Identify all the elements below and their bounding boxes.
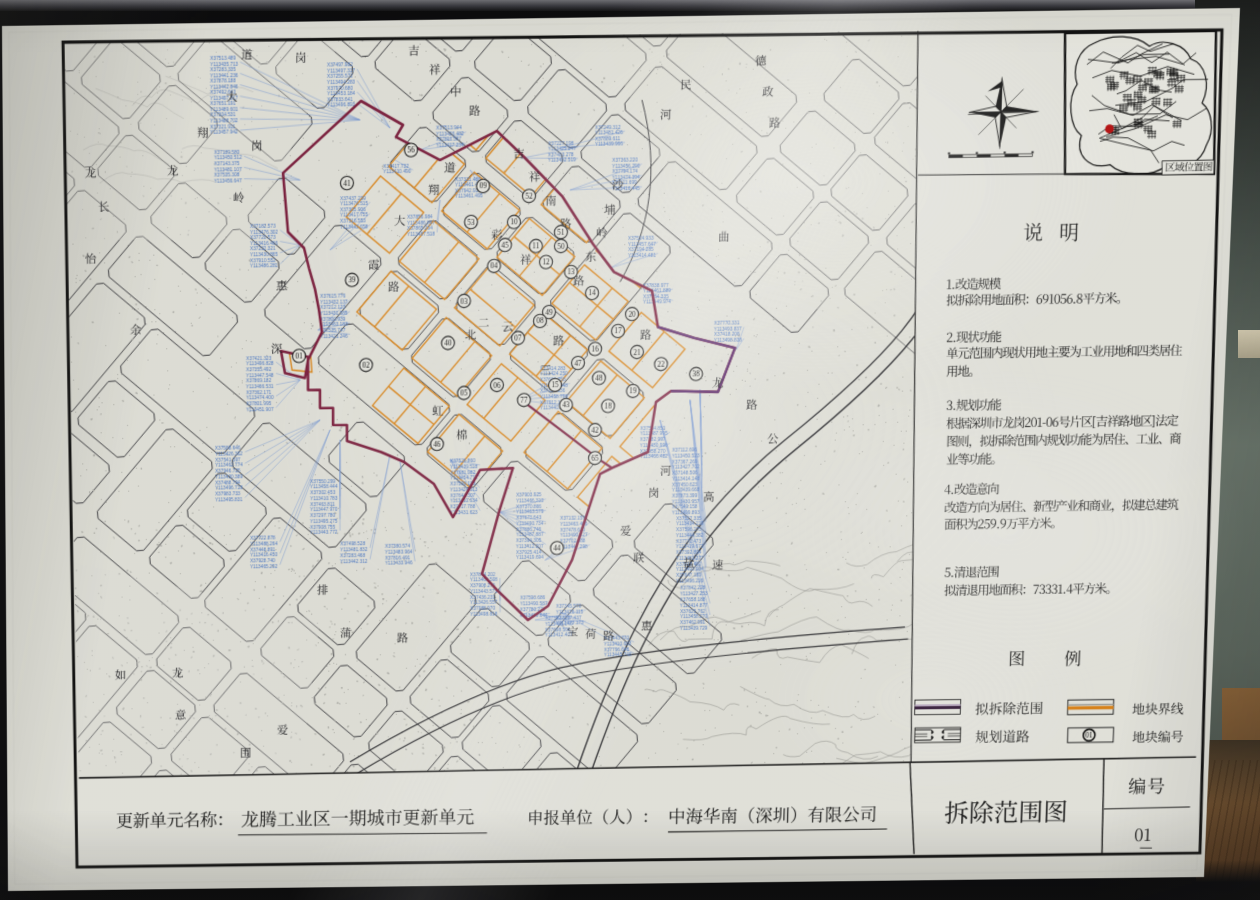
svg-text:06: 06 — [493, 381, 501, 390]
svg-text:X37818.462: X37818.462 — [676, 561, 702, 567]
svg-text:X37615.776: X37615.776 — [320, 294, 346, 300]
svg-text:Y113496.893: Y113496.893 — [327, 102, 355, 108]
svg-text:X37189.580: X37189.580 — [214, 150, 240, 156]
svg-text:X37227.198: X37227.198 — [548, 141, 574, 147]
svg-text:Y113456.290: Y113456.290 — [612, 163, 640, 169]
svg-text:Y113496.216: Y113496.216 — [676, 578, 704, 584]
svg-text:Y113495.831: Y113495.831 — [215, 497, 243, 503]
svg-text:Y113457.942: Y113457.942 — [210, 130, 238, 136]
svg-text:03: 03 — [460, 297, 468, 306]
svg-text:Y113417.234: Y113417.234 — [436, 143, 464, 149]
svg-text:X37698.506: X37698.506 — [545, 627, 571, 633]
svg-text:Y113489.601: Y113489.601 — [210, 107, 238, 113]
svg-text:10: 10 — [510, 218, 518, 227]
svg-text:Y113416.466: Y113416.466 — [250, 241, 278, 247]
svg-text:17: 17 — [614, 327, 622, 336]
svg-text:X37970.680: X37970.680 — [327, 85, 353, 91]
svg-text:Y113432.519: Y113432.519 — [548, 158, 576, 164]
svg-text:Y113447.298: Y113447.298 — [560, 544, 588, 550]
svg-text:X37925.414: X37925.414 — [516, 550, 542, 556]
svg-text:Y113442.658: Y113442.658 — [340, 224, 368, 230]
svg-text:X37889.611: X37889.611 — [595, 136, 621, 142]
svg-text:X37702.688: X37702.688 — [560, 539, 586, 545]
svg-text:X37946.725: X37946.725 — [215, 469, 241, 475]
svg-text:16: 16 — [591, 345, 599, 354]
svg-text:X37448.891: X37448.891 — [250, 547, 276, 553]
svg-text:X37362.171: X37362.171 — [246, 390, 272, 396]
svg-text:07: 07 — [514, 334, 522, 343]
svg-text:15: 15 — [551, 381, 559, 390]
svg-text:Y113442.312: Y113442.312 — [340, 559, 368, 565]
svg-text:X37720.573: X37720.573 — [250, 235, 276, 241]
svg-text:45: 45 — [501, 241, 509, 250]
svg-text:Y113414.877: Y113414.877 — [680, 603, 708, 609]
svg-text:12: 12 — [542, 258, 550, 267]
svg-text:X37535.308: X37535.308 — [214, 172, 240, 178]
svg-text:Y113458.270: Y113458.270 — [680, 614, 708, 620]
svg-text:Y113410.783: Y113410.783 — [310, 496, 338, 502]
svg-text:46: 46 — [433, 440, 441, 449]
svg-text:X37873.399: X37873.399 — [672, 493, 698, 499]
svg-text:X37132.159: X37132.159 — [560, 516, 586, 522]
svg-text:Y113493.837: Y113493.837 — [714, 326, 742, 332]
svg-text:47: 47 — [574, 359, 582, 368]
svg-text:X37497.982: X37497.982 — [327, 63, 353, 69]
svg-text:X37143.375: X37143.375 — [214, 161, 240, 167]
svg-text:Y113424.613: Y113424.613 — [450, 487, 478, 493]
svg-text:44: 44 — [553, 544, 561, 553]
svg-text:X37856.984: X37856.984 — [407, 215, 433, 221]
svg-text:08: 08 — [536, 317, 544, 326]
svg-text:Y113463.183: Y113463.183 — [320, 322, 348, 328]
svg-text:48: 48 — [595, 374, 603, 383]
svg-text:X37590.686: X37590.686 — [520, 596, 546, 602]
svg-text:X37321.486: X37321.486 — [455, 177, 481, 183]
svg-text:Y113462.774: Y113462.774 — [215, 463, 243, 469]
svg-text:Y113426.462: Y113426.462 — [436, 131, 464, 137]
svg-text:X37651.191: X37651.191 — [210, 101, 236, 107]
svg-text:40: 40 — [444, 339, 452, 348]
svg-text:65: 65 — [591, 454, 599, 463]
svg-text:X37526.860: X37526.860 — [450, 459, 476, 465]
svg-text:X37436.231: X37436.231 — [470, 595, 496, 601]
svg-text:Y113419.673: Y113419.673 — [676, 544, 704, 550]
svg-text:Y113466.310: Y113466.310 — [516, 498, 544, 504]
svg-text:X37869.182: X37869.182 — [246, 379, 272, 385]
svg-text:X37513.944: X37513.944 — [436, 126, 462, 132]
svg-text:X37283.468: X37283.468 — [340, 553, 366, 559]
svg-text:09: 09 — [479, 182, 487, 191]
svg-text:X37513.489: X37513.489 — [210, 56, 236, 62]
svg-text:Y113435.713: Y113435.713 — [210, 61, 238, 67]
svg-text:43: 43 — [562, 401, 570, 410]
svg-text:Y113439.518: Y113439.518 — [450, 464, 478, 470]
svg-text:05: 05 — [460, 389, 468, 398]
svg-text:Y113425.247: Y113425.247 — [548, 146, 576, 152]
svg-text:X37304.531: X37304.531 — [210, 113, 236, 119]
svg-text:Y113496.718: Y113496.718 — [215, 485, 243, 491]
svg-text:Y113426.362: Y113426.362 — [215, 451, 243, 457]
svg-text:22: 22 — [657, 360, 665, 369]
svg-text:Y113430.957: Y113430.957 — [672, 499, 700, 505]
svg-text:Y113498.818: Y113498.818 — [470, 612, 498, 618]
svg-text:X37928.740: X37928.740 — [250, 559, 276, 565]
svg-text:Y113443.571: Y113443.571 — [470, 589, 498, 595]
svg-text:Y113493.934: Y113493.934 — [676, 567, 704, 573]
svg-text:Y113421.246: Y113421.246 — [320, 334, 348, 340]
svg-text:Y113410.490: Y113410.490 — [383, 169, 411, 175]
svg-text:X37527.335: X37527.335 — [676, 516, 702, 522]
svg-text:X37549.158: X37549.158 — [672, 505, 698, 511]
svg-text:Y113432.137: Y113432.137 — [320, 299, 348, 305]
svg-text:X37865.254: X37865.254 — [407, 226, 433, 232]
svg-text:X37355.492: X37355.492 — [246, 367, 272, 373]
svg-text:Y113497.817: Y113497.817 — [210, 96, 238, 102]
svg-text:Y113490.587: Y113490.587 — [520, 601, 548, 607]
svg-text:X37182.573: X37182.573 — [250, 224, 276, 230]
svg-text:X37886.746: X37886.746 — [516, 527, 542, 533]
svg-text:X37658.188: X37658.188 — [680, 597, 706, 603]
svg-text:Y113460.508: Y113460.508 — [470, 577, 498, 583]
svg-text:X37981.982: X37981.982 — [450, 470, 476, 476]
svg-text:Y113414.148: Y113414.148 — [672, 476, 700, 482]
svg-text:X37550.299: X37550.299 — [310, 479, 336, 485]
svg-text:77: 77 — [520, 396, 528, 405]
svg-text:X37794.174: X37794.174 — [612, 169, 638, 175]
svg-text:X37908.755: X37908.755 — [310, 524, 336, 530]
svg-text:Y113419.694: Y113419.694 — [516, 555, 544, 561]
svg-text:X37414.283: X37414.283 — [540, 366, 566, 372]
svg-text:11: 11 — [532, 242, 539, 251]
svg-text:Y113430.389: Y113430.389 — [215, 474, 243, 480]
svg-text:X37811.587: X37811.587 — [436, 137, 462, 143]
svg-text:X37450.623: X37450.623 — [672, 482, 698, 488]
svg-text:Y113444.382: Y113444.382 — [676, 533, 704, 539]
svg-text:01: 01 — [1085, 731, 1093, 740]
svg-text:Y113442.846: Y113442.846 — [210, 84, 238, 90]
svg-text:X37394.305: X37394.305 — [516, 538, 542, 544]
svg-text:04: 04 — [490, 262, 498, 271]
svg-text:X37380.574: X37380.574 — [385, 544, 411, 550]
svg-text:X37596.275: X37596.275 — [676, 527, 702, 533]
svg-text:Y113481.832: Y113481.832 — [340, 547, 368, 553]
svg-text:X37910.552: X37910.552 — [250, 258, 276, 264]
svg-text:14: 14 — [588, 289, 596, 298]
svg-text:X37554.335: X37554.335 — [643, 294, 669, 300]
svg-text:Y113441.236: Y113441.236 — [210, 73, 238, 79]
svg-text:Y113463.579: Y113463.579 — [516, 510, 544, 516]
svg-text:X37842.228: X37842.228 — [680, 586, 706, 592]
svg-text:Y113445.748: Y113445.748 — [604, 653, 632, 659]
svg-text:Y113410.683: Y113410.683 — [604, 641, 632, 647]
svg-text:53: 53 — [467, 218, 475, 227]
svg-text:Y113450.512: Y113450.512 — [214, 155, 242, 161]
svg-text:Y113476.115: Y113476.115 — [556, 609, 583, 615]
svg-text:X37647.183: X37647.183 — [676, 573, 702, 579]
svg-text:X37488.794: X37488.794 — [215, 480, 241, 486]
svg-text:X37988.970: X37988.970 — [470, 606, 496, 612]
svg-text:Y113490.827: Y113490.827 — [560, 533, 588, 539]
svg-text:X37367.269: X37367.269 — [672, 459, 698, 465]
svg-text:X37316.553: X37316.553 — [340, 218, 366, 224]
svg-text:Y113416.450: Y113416.450 — [250, 553, 278, 559]
svg-text:Y113496.828: Y113496.828 — [246, 361, 274, 367]
svg-text:Y113481.426: Y113481.426 — [595, 130, 623, 136]
svg-text:21: 21 — [633, 348, 641, 357]
svg-text:X37625.762: X37625.762 — [680, 609, 706, 615]
svg-text:X37722.878: X37722.878 — [250, 536, 276, 542]
svg-text:X37403.278: X37403.278 — [548, 152, 574, 158]
svg-text:X37283.335: X37283.335 — [210, 67, 236, 73]
svg-text:X37111.699: X37111.699 — [612, 180, 637, 186]
svg-text:Y113424.250: Y113424.250 — [540, 371, 568, 377]
svg-text:X37182.997: X37182.997 — [640, 437, 666, 443]
svg-text:Y113474.400: Y113474.400 — [246, 395, 274, 401]
svg-text:X37796.645: X37796.645 — [604, 647, 630, 653]
svg-text:X37535.747: X37535.747 — [320, 328, 346, 334]
svg-text:Y113412.207: Y113412.207 — [516, 544, 544, 550]
svg-text:Y113466.531: Y113466.531 — [246, 384, 274, 390]
svg-text:38: 38 — [692, 370, 700, 379]
svg-text:X37417.788: X37417.788 — [450, 504, 476, 510]
svg-text:Y113486.897: Y113486.897 — [407, 220, 435, 226]
svg-text:Y113487.518: Y113487.518 — [407, 232, 435, 238]
svg-text:Y113417.755: Y113417.755 — [340, 213, 368, 219]
svg-text:Y113487.887: Y113487.887 — [516, 532, 544, 538]
svg-text:Y113495.275: Y113495.275 — [310, 518, 338, 524]
svg-text:Y113447.548: Y113447.548 — [246, 373, 274, 379]
svg-text:Y113439.729: Y113439.729 — [680, 626, 708, 632]
svg-text:Y113487.995: Y113487.995 — [640, 431, 668, 437]
svg-text:19: 19 — [629, 387, 637, 396]
svg-text:X37463.811: X37463.811 — [310, 502, 335, 508]
svg-text:Y113449.974: Y113449.974 — [643, 300, 671, 306]
svg-text:X37588.646: X37588.646 — [215, 446, 241, 452]
svg-text:51: 51 — [557, 228, 565, 237]
svg-text:X37232.321: X37232.321 — [250, 246, 276, 252]
svg-text:X37305.906: X37305.906 — [340, 207, 366, 213]
svg-text:X37541.397: X37541.397 — [215, 457, 241, 463]
svg-text:Y113488.264: Y113488.264 — [250, 541, 278, 547]
svg-text:X37370.866: X37370.866 — [516, 504, 542, 510]
svg-text:X37437.239: X37437.239 — [340, 196, 366, 202]
svg-text:Y113494.283: Y113494.283 — [327, 80, 355, 86]
svg-text:Y113439.966: Y113439.966 — [595, 142, 623, 148]
svg-text:Y113439.668: Y113439.668 — [672, 487, 700, 493]
svg-text:Y113430.865: Y113430.865 — [250, 252, 278, 258]
svg-text:Y113427.253: Y113427.253 — [680, 591, 708, 597]
svg-text:Y113476.302: Y113476.302 — [250, 229, 278, 235]
svg-text:Y113447.970: Y113447.970 — [310, 507, 338, 513]
svg-text:X37249.312: X37249.312 — [595, 125, 621, 131]
svg-text:Y113486.281: Y113486.281 — [250, 264, 278, 270]
svg-text:Y113490.734: Y113490.734 — [516, 521, 544, 527]
svg-text:Y113412.407: Y113412.407 — [545, 633, 573, 639]
svg-text:Y113474.394: Y113474.394 — [612, 175, 640, 181]
svg-text:18: 18 — [604, 402, 612, 411]
svg-text:X37212.123: X37212.123 — [320, 305, 346, 311]
svg-text:Y113450.523: Y113450.523 — [672, 453, 700, 459]
svg-text:Y113485.146: Y113485.146 — [545, 621, 573, 627]
svg-text:Y113481.107: Y113481.107 — [214, 167, 242, 173]
svg-text:X37363.220: X37363.220 — [612, 158, 638, 164]
svg-text:Y113433.946: Y113433.946 — [385, 561, 413, 567]
svg-text:X37498.528: X37498.528 — [340, 542, 366, 548]
svg-text:X37816.491: X37816.491 — [385, 555, 411, 561]
svg-text:X37421.323: X37421.323 — [246, 356, 272, 362]
svg-text:X37321.911: X37321.911 — [210, 124, 236, 130]
svg-text:Y113431.585: Y113431.585 — [320, 311, 348, 317]
svg-text:Y113488.702: Y113488.702 — [210, 118, 238, 124]
svg-text:Y113497.317: Y113497.317 — [327, 68, 355, 74]
svg-text:X37302.453: X37302.453 — [310, 490, 336, 496]
svg-text:41: 41 — [343, 179, 351, 188]
svg-text:X37359.420: X37359.420 — [545, 616, 571, 622]
svg-text:X37800.939: X37800.939 — [320, 316, 346, 322]
svg-text:X37297.780: X37297.780 — [310, 513, 336, 519]
svg-text:Y113443.772: Y113443.772 — [310, 530, 338, 536]
svg-text:Y113461.495: Y113461.495 — [455, 194, 483, 200]
svg-text:49: 49 — [545, 308, 553, 317]
svg-text:X37255.572: X37255.572 — [327, 74, 353, 80]
svg-text:56: 56 — [407, 146, 415, 155]
svg-text:X37833.641: X37833.641 — [327, 97, 353, 103]
svg-text:02: 02 — [362, 361, 370, 370]
svg-text:X37673.643: X37673.643 — [516, 516, 542, 522]
svg-text:Y113430.996: Y113430.996 — [640, 443, 668, 449]
svg-text:X37112.696: X37112.696 — [672, 448, 697, 454]
svg-text:Y113414.481: Y113414.481 — [628, 253, 656, 259]
svg-text:X37772.473: X37772.473 — [676, 539, 702, 545]
svg-text:X37302.894: X37302.894 — [676, 550, 702, 556]
svg-text:Y113476.515: Y113476.515 — [340, 201, 368, 207]
svg-text:Y113453.184: Y113453.184 — [327, 91, 355, 97]
svg-text:39: 39 — [348, 276, 356, 285]
svg-text:Y113426.557: Y113426.557 — [470, 600, 498, 606]
svg-text:Y113427.702: Y113427.702 — [672, 465, 700, 471]
svg-text:Y113456.647: Y113456.647 — [214, 178, 242, 184]
svg-text:Y113434.219: Y113434.219 — [676, 521, 704, 527]
svg-text:42: 42 — [591, 426, 599, 435]
svg-text:X37878.188: X37878.188 — [210, 78, 236, 84]
svg-text:Y113458.444: Y113458.444 — [310, 484, 338, 490]
svg-text:X37194.285: X37194.285 — [628, 247, 654, 253]
svg-text:Y113499.893: Y113499.893 — [672, 510, 700, 516]
svg-text:20: 20 — [628, 310, 636, 319]
svg-text:X37524.933: X37524.933 — [628, 236, 654, 242]
svg-text:X37345.570: X37345.570 — [556, 604, 582, 610]
svg-text:Y113465.292: Y113465.292 — [250, 564, 278, 570]
svg-text:X37462.991: X37462.991 — [680, 620, 706, 626]
svg-text:01: 01 — [295, 352, 303, 361]
svg-text:X37801.995: X37801.995 — [246, 401, 272, 407]
svg-text:13: 13 — [567, 268, 575, 277]
svg-text:X37983.733: X37983.733 — [215, 491, 241, 497]
svg-text:Y113451.907: Y113451.907 — [246, 407, 274, 413]
svg-text:X37148.506: X37148.506 — [672, 471, 698, 477]
svg-text:X37418.208: X37418.208 — [714, 332, 740, 338]
svg-text:X37417.732: X37417.732 — [383, 164, 409, 170]
svg-text:X37903.925: X37903.925 — [516, 493, 542, 499]
svg-text:X37770.331: X37770.331 — [714, 321, 740, 327]
svg-text:Y113483.964: Y113483.964 — [385, 549, 413, 555]
svg-text:Y113457.647: Y113457.647 — [628, 241, 656, 247]
svg-text:50: 50 — [557, 242, 565, 251]
svg-text:52: 52 — [525, 192, 533, 201]
